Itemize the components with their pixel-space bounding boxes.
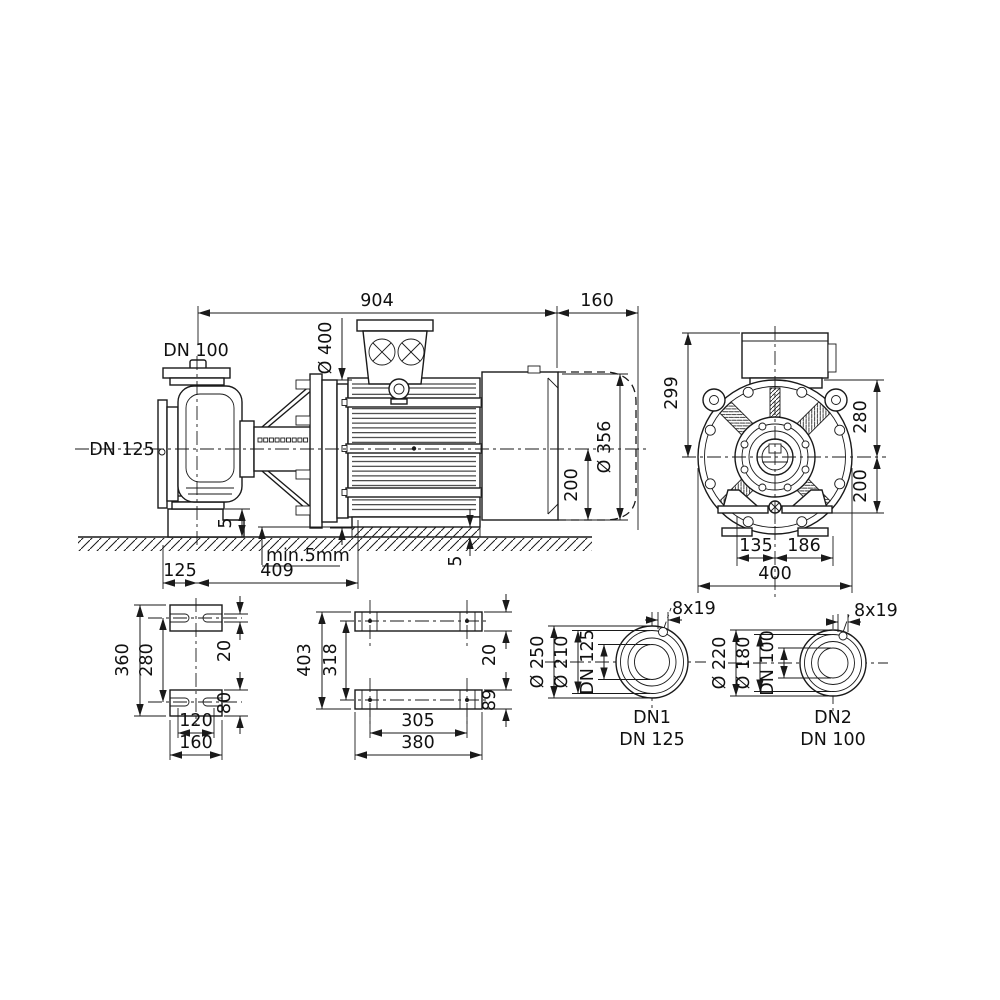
dn2-nominal: DN 100 (758, 630, 778, 696)
dim-foot-135: 135 (739, 536, 772, 556)
dim-upper-280: 280 (851, 400, 871, 433)
label-discharge-flange: DN 100 (163, 341, 229, 361)
dim-motor-dia: Ø 356 (595, 421, 615, 474)
dn1-caption: DN1 (633, 708, 671, 728)
dim-lower-200: 200 (851, 469, 871, 502)
dim-318: 318 (321, 643, 341, 676)
lifting-eyebolt (389, 379, 409, 404)
dim-width-400: 400 (758, 564, 791, 584)
pump-foot-plate (172, 502, 224, 509)
dn2-caption-size: DN 100 (800, 730, 866, 750)
dn1-nominal: DN 125 (578, 629, 598, 695)
dim-foot-80: 80 (215, 692, 235, 714)
motor-rail-top (355, 612, 482, 631)
dn1-bore (635, 645, 670, 680)
dn2-holes-label: 8x19 (854, 601, 898, 621)
terminal-box-front (742, 333, 828, 378)
dim-holes-120: 120 (179, 711, 212, 731)
motor-grout-strip (352, 527, 480, 537)
dim-motor-grout: 5 (446, 555, 466, 566)
dim-foot-offset: 125 (163, 561, 196, 581)
dim-width-380: 380 (401, 733, 434, 753)
dn1-bolt-circle: Ø 210 (552, 636, 572, 689)
dim-motor-flange-dia: Ø 400 (316, 322, 336, 375)
dim-holes-305: 305 (401, 711, 434, 731)
motor-baseplate (352, 517, 480, 527)
dim-shaft-height: 200 (562, 468, 582, 501)
terminal-box-lid (357, 320, 433, 331)
volute-inner (186, 394, 234, 482)
dn2-bolt-circle: Ø 180 (734, 637, 754, 690)
dim-plate-20: 20 (480, 644, 500, 666)
lantern-flange (310, 374, 322, 528)
dn2-outer-dia: Ø 220 (710, 637, 730, 690)
dn1-outer-dia: Ø 250 (528, 636, 548, 689)
dim-foot-186: 186 (787, 536, 820, 556)
dim-overall-length: 904 (360, 291, 393, 311)
dim-extension-length: 160 (580, 291, 613, 311)
label-suction-flange: DN 125 (89, 440, 155, 460)
drawing-canvas: 904 160 DN 100 DN 125 Ø 400 Ø 356 200 5 … (0, 0, 1000, 1000)
dim-403: 403 (295, 643, 315, 676)
discharge-flange (163, 368, 230, 378)
dn2-bolt-hole (839, 632, 847, 640)
dn1-caption-size: DN 125 (619, 730, 685, 750)
fan-cover (482, 372, 558, 520)
dn2-caption: DN2 (814, 708, 852, 728)
dim-360: 360 (113, 643, 133, 676)
shaft-center-mark (412, 446, 416, 450)
dim-280-feet: 280 (137, 643, 157, 676)
terminal-box-gland (828, 344, 836, 372)
dn1-holes-label: 8x19 (672, 599, 716, 619)
pump-dimensional-drawing: 904 160 DN 100 DN 125 Ø 400 Ø 356 200 5 … (0, 0, 1000, 1000)
dim-slot-20: 20 (215, 640, 235, 662)
suction-flange-inner (167, 407, 178, 501)
dim-height-299: 299 (662, 376, 682, 409)
dim-rail-89: 89 (480, 689, 500, 711)
motor-rail-bottom (355, 690, 482, 709)
fan-cover-tab (528, 366, 540, 373)
dn2-bore (818, 648, 848, 678)
dim-foot-span: 409 (260, 561, 293, 581)
dim-pump-grout: 5 (216, 517, 236, 528)
motor-flange (322, 380, 337, 522)
dn1-bolt-hole (659, 628, 668, 637)
dim-width-160: 160 (179, 733, 212, 753)
